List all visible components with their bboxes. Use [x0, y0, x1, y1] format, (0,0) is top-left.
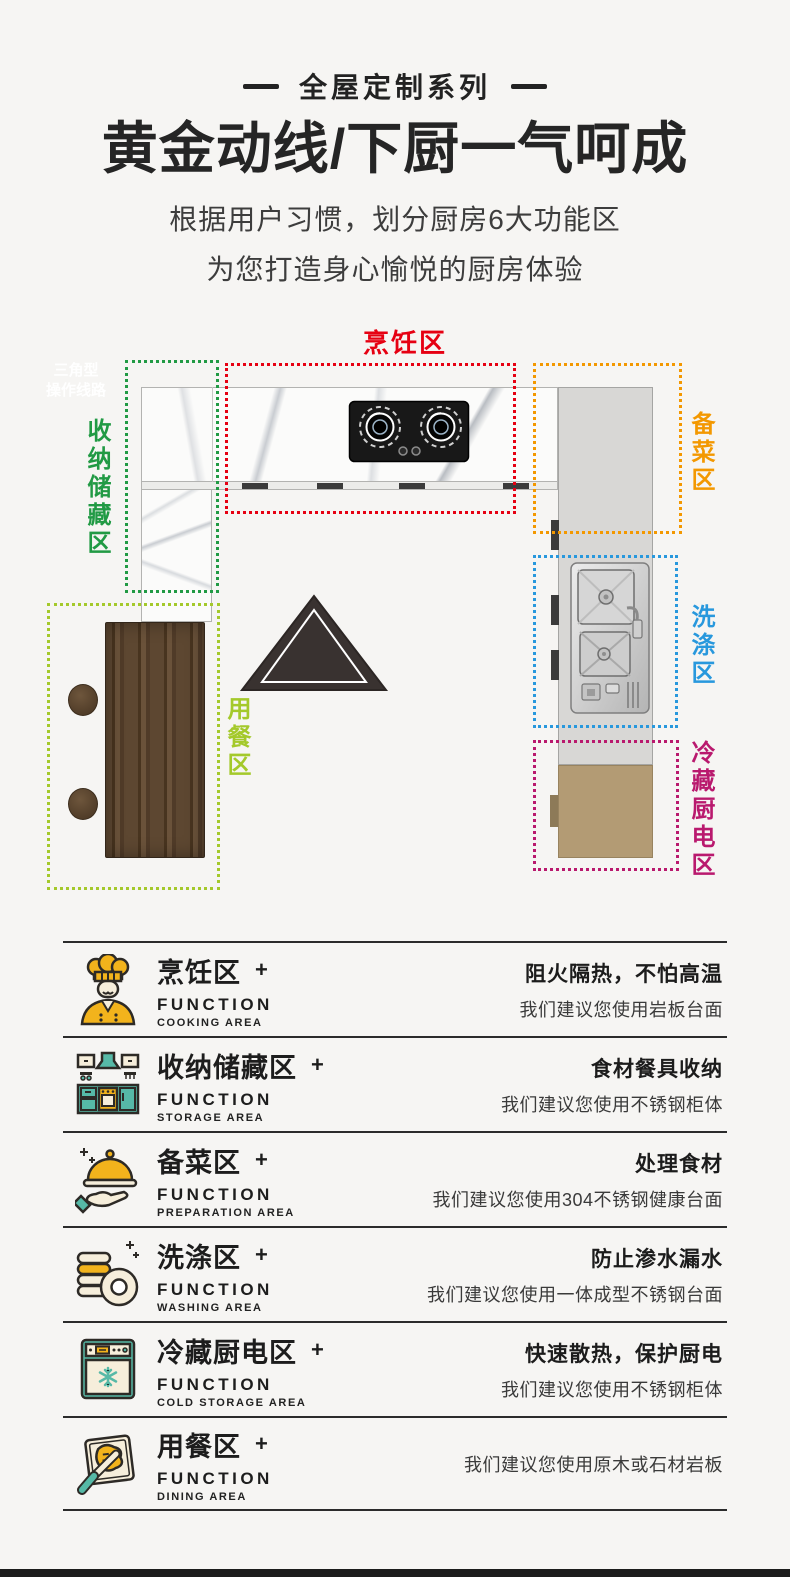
area-label: WASHING AREA	[157, 1302, 273, 1314]
zone-name: 收纳储藏区	[157, 1046, 297, 1085]
dash-decoration-left	[243, 84, 279, 89]
function-row-dining: 用餐区 + FUNCTION DINING AREA 我们建议您使用原木或石材岩…	[63, 1416, 727, 1511]
zone-name: 备菜区	[157, 1141, 241, 1180]
function-row-storage: 收纳储藏区 + FUNCTION STORAGE AREA 食材餐具收纳 我们建…	[63, 1036, 727, 1131]
area-label: COOKING AREA	[157, 1017, 273, 1029]
zone-name: 洗涤区	[157, 1236, 241, 1275]
zone-name: 烹饪区	[157, 951, 241, 990]
function-label: FUNCTION	[157, 1280, 273, 1300]
work-triangle	[238, 593, 390, 693]
function-label: FUNCTION	[157, 995, 273, 1015]
chef-icon	[75, 954, 141, 1026]
zone-label-storage: 收纳储藏区	[82, 418, 110, 558]
function-row-cooking: 烹饪区 + FUNCTION COOKING AREA 阻火隔热，不怕高温 我们…	[63, 941, 727, 1036]
function-label: FUNCTION	[157, 1185, 295, 1205]
plus-sign: +	[255, 1147, 268, 1173]
benefit-text: 处理食材	[432, 1148, 723, 1178]
zone-box-washing	[533, 555, 678, 728]
suggestion-text: 我们建议您使用一体成型不锈钢台面	[427, 1281, 723, 1307]
series-tagline: 全屋定制系列	[0, 66, 790, 106]
function-row-cold-storage: 冷藏厨电区 + FUNCTION COLD STORAGE AREA 快速散热，…	[63, 1321, 727, 1416]
zone-name: 用餐区	[157, 1425, 241, 1464]
fridge-icon	[75, 1334, 141, 1406]
suggestion-text: 我们建议您使用不锈钢柜体	[501, 1376, 723, 1402]
function-row-preparation: 备菜区 + FUNCTION PREPARATION AREA 处理食材 我们建…	[63, 1131, 727, 1226]
zone-label-preparation: 备菜区	[686, 411, 714, 495]
series-tag-text: 全屋定制系列	[299, 66, 491, 106]
function-label: FUNCTION	[157, 1090, 324, 1110]
zone-label-cooking: 烹饪区	[363, 323, 447, 360]
suggestion-text: 我们建议您使用岩板台面	[520, 996, 724, 1022]
benefit-text: 食材餐具收纳	[501, 1053, 723, 1083]
floor-plan: 三角型 操作线路 烹饪区 收纳储藏区 备菜区 洗涤区 冷藏厨电区 用餐区	[0, 315, 790, 921]
area-label: COLD STORAGE AREA	[157, 1397, 324, 1409]
dash-decoration-right	[511, 84, 547, 89]
zone-label-washing: 洗涤区	[686, 604, 714, 688]
subtitle-line-2: 为您打造身心愉悦的厨房体验	[0, 248, 790, 288]
benefit-text: 快速散热，保护厨电	[501, 1338, 723, 1368]
plus-sign: +	[255, 1242, 268, 1268]
cabinet-icon	[75, 1049, 141, 1121]
plate-knife-icon	[75, 1428, 141, 1500]
area-label: PREPARATION AREA	[157, 1207, 295, 1219]
area-label: DINING AREA	[157, 1491, 273, 1503]
suggestion-text: 我们建议您使用304不锈钢健康台面	[432, 1186, 723, 1212]
function-row-washing: 洗涤区 + FUNCTION WASHING AREA 防止渗水漏水 我们建议您…	[63, 1226, 727, 1321]
plus-sign: +	[255, 957, 268, 983]
zone-box-cooking	[225, 363, 516, 514]
section-divider-bar	[0, 1569, 790, 1577]
function-list: 烹饪区 + FUNCTION COOKING AREA 阻火隔热，不怕高温 我们…	[63, 941, 727, 1511]
plus-sign: +	[311, 1337, 324, 1363]
zone-label-cold-storage: 冷藏厨电区	[686, 740, 714, 880]
suggestion-text: 我们建议您使用不锈钢柜体	[501, 1091, 723, 1117]
plus-sign: +	[311, 1052, 324, 1078]
cloche-icon	[75, 1144, 141, 1216]
benefit-text: 防止渗水漏水	[427, 1243, 723, 1273]
subtitle-line-1: 根据用户习惯，划分厨房6大功能区	[0, 198, 790, 238]
zone-box-preparation	[533, 363, 682, 534]
kitchen-infographic-page: 全屋定制系列 黄金动线/下厨一气呵成 根据用户习惯，划分厨房6大功能区 为您打造…	[0, 0, 790, 1577]
header: 全屋定制系列 黄金动线/下厨一气呵成 根据用户习惯，划分厨房6大功能区 为您打造…	[0, 66, 790, 288]
zone-box-dining	[47, 603, 220, 890]
zone-box-cold-storage	[533, 740, 679, 871]
zone-box-storage	[125, 360, 219, 593]
function-label: FUNCTION	[157, 1375, 324, 1395]
benefit-text: 阻火隔热，不怕高温	[520, 958, 724, 988]
plus-sign: +	[255, 1431, 268, 1457]
page-title: 黄金动线/下厨一气呵成	[0, 118, 790, 180]
function-label: FUNCTION	[157, 1469, 273, 1489]
dishes-icon	[75, 1239, 141, 1311]
zone-label-dining: 用餐区	[222, 696, 250, 780]
area-label: STORAGE AREA	[157, 1112, 324, 1124]
zone-name: 冷藏厨电区	[157, 1331, 297, 1370]
suggestion-text: 我们建议您使用原木或石材岩板	[464, 1451, 723, 1477]
